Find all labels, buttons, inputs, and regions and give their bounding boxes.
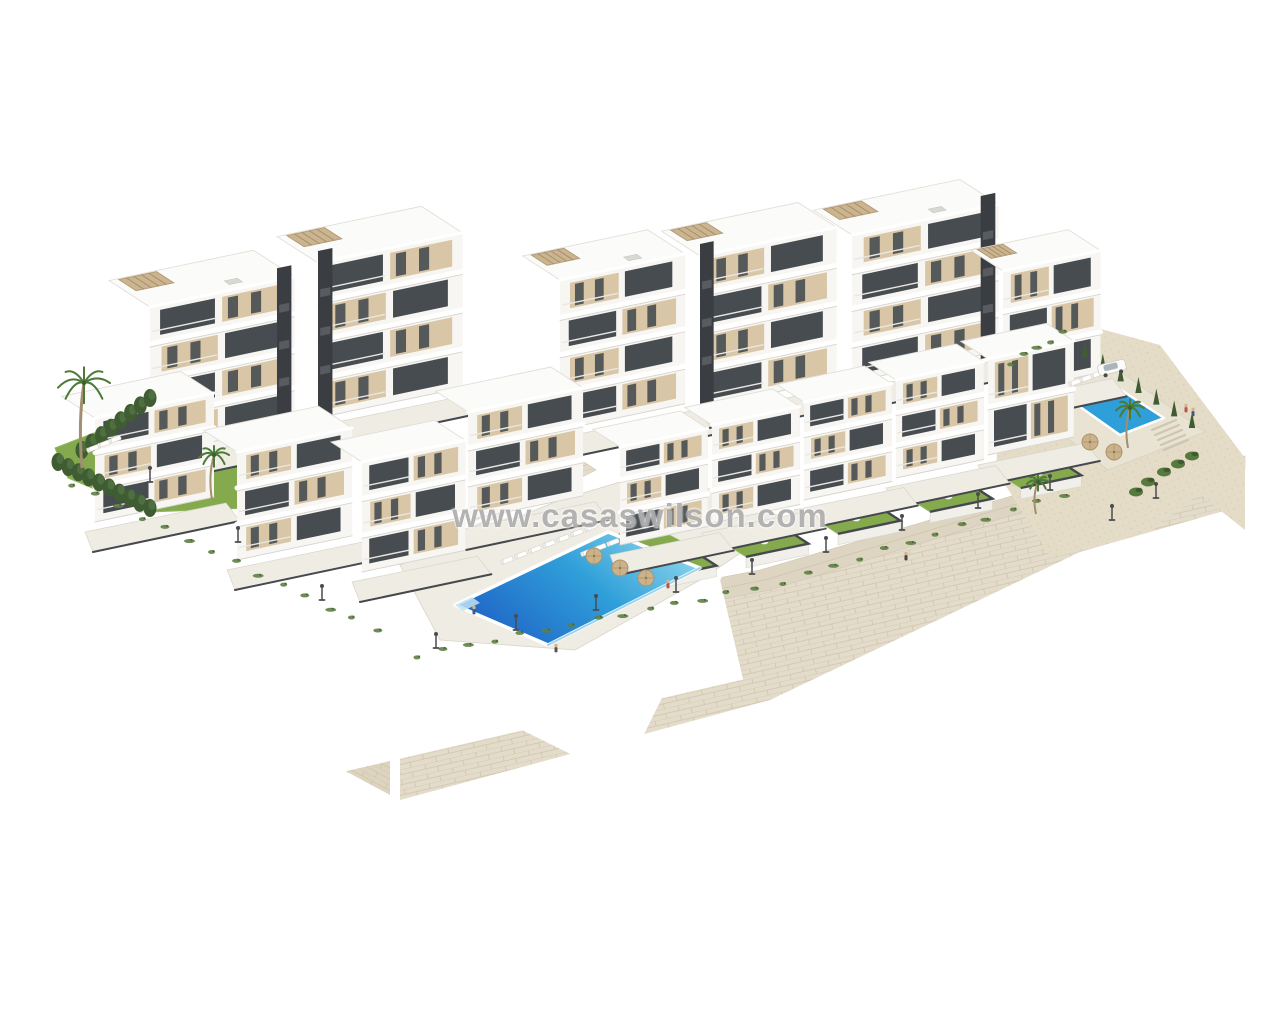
panel-window xyxy=(627,308,636,331)
grass-tuft-dot xyxy=(213,550,215,552)
hedge-highlight xyxy=(128,490,135,500)
grass-tuft-dot xyxy=(166,525,168,527)
grass-tuft xyxy=(373,628,382,632)
grass-tuft xyxy=(253,574,264,578)
parasol-pole xyxy=(1089,441,1091,443)
panel-window xyxy=(251,365,261,388)
grass-tuft xyxy=(594,616,603,620)
grass-tuft-dot xyxy=(143,517,145,519)
grass-tuft-dot xyxy=(652,607,654,609)
grass-tuft-dot xyxy=(1052,340,1054,342)
person-head xyxy=(904,552,907,555)
palm-crown xyxy=(1128,406,1132,410)
panel-window xyxy=(530,440,538,462)
palm-crown xyxy=(212,453,216,457)
grass-tuft xyxy=(1019,352,1028,356)
shrub-shade xyxy=(1178,460,1185,464)
palm-crown xyxy=(82,381,86,385)
grass-tuft xyxy=(438,647,447,651)
panel-window xyxy=(681,505,687,523)
panel-window xyxy=(228,295,238,318)
person-body xyxy=(555,647,558,652)
grass-tuft xyxy=(1058,330,1067,334)
hedge-highlight xyxy=(138,495,145,505)
grass-tuft-dot xyxy=(496,640,498,642)
street-lamp-head xyxy=(824,536,828,540)
grass-tuft-dot xyxy=(306,593,308,595)
panel-window xyxy=(228,369,238,392)
panel-window xyxy=(865,460,871,478)
panel-window xyxy=(681,440,687,458)
grass-tuft xyxy=(804,571,813,575)
person-head xyxy=(1184,404,1187,407)
panel-window xyxy=(1056,306,1063,332)
street-lamp-head xyxy=(1048,474,1052,478)
hedge-highlight xyxy=(149,390,156,400)
panel-window xyxy=(1048,400,1054,433)
panel-window xyxy=(434,452,441,474)
panel-window xyxy=(178,406,186,426)
person-body xyxy=(905,555,908,560)
grass-tuft-dot xyxy=(96,492,98,494)
shrub-shade xyxy=(1192,452,1199,456)
panel-window xyxy=(549,436,557,458)
panel-window xyxy=(774,283,784,307)
panel-window xyxy=(667,443,673,461)
facade-window xyxy=(1033,348,1066,391)
street-lamp-head xyxy=(900,514,904,518)
person-head xyxy=(666,580,669,583)
panel-window xyxy=(667,508,673,526)
grass-tuft-dot xyxy=(521,631,523,633)
grass-tuft-dot xyxy=(73,484,75,486)
person-head xyxy=(1191,408,1194,411)
grass-tuft-dot xyxy=(418,655,420,657)
panel-window xyxy=(434,526,441,548)
grass-tuft-dot xyxy=(912,541,914,543)
street-lamp-head xyxy=(148,466,152,470)
grass-tuft-dot xyxy=(259,574,261,576)
grass-tuft xyxy=(828,564,839,568)
grass-tuft-dot xyxy=(1064,330,1066,332)
grass-tuft xyxy=(1031,346,1042,350)
panel-window xyxy=(957,405,963,423)
grass-tuft-dot xyxy=(936,533,938,535)
panel-window xyxy=(931,260,941,283)
scene-canvas xyxy=(0,0,1280,1024)
hedge-highlight xyxy=(118,485,125,495)
panel-window xyxy=(865,395,871,413)
grass-tuft-dot xyxy=(1014,507,1016,509)
hedge-highlight xyxy=(67,459,74,469)
grass-tuft xyxy=(232,559,241,563)
grass-tuft-dot xyxy=(963,522,965,524)
panel-window xyxy=(419,324,429,349)
person-head xyxy=(472,606,475,609)
hedge-highlight xyxy=(87,469,94,479)
grass-tuft xyxy=(980,518,991,522)
panel-window xyxy=(796,279,806,303)
panel-window xyxy=(396,251,406,276)
architectural-render: www.casaswilson.com xyxy=(0,0,1280,1024)
panel-window xyxy=(178,475,186,495)
grass-tuft-dot xyxy=(987,518,989,520)
person-body xyxy=(667,583,670,588)
panel-window xyxy=(419,247,429,272)
grass-tuft-dot xyxy=(1038,346,1040,348)
panel-window xyxy=(627,383,636,406)
grass-tuft xyxy=(697,599,708,603)
panel-window xyxy=(159,479,167,499)
person-body xyxy=(1192,411,1195,416)
grass-tuft-dot xyxy=(784,582,786,584)
grass-tuft-dot xyxy=(1012,362,1014,364)
grass-tuft-dot xyxy=(756,587,758,589)
hedge-highlight xyxy=(97,474,104,484)
grass-tuft xyxy=(750,587,759,591)
grass-tuft-dot xyxy=(1025,352,1027,354)
street-lamp-head xyxy=(236,526,240,530)
panel-window xyxy=(299,480,307,502)
grass-tuft-dot xyxy=(379,628,381,630)
grass-tuft xyxy=(325,608,336,612)
hedge-highlight xyxy=(57,454,64,464)
shrub-shade xyxy=(1148,478,1155,482)
grass-tuft-dot xyxy=(469,643,471,645)
panel-window xyxy=(774,359,784,383)
grass-tuft xyxy=(880,546,889,550)
shrub-shade xyxy=(1136,488,1143,492)
grass-tuft-dot xyxy=(704,599,706,601)
grass-tuft-dot xyxy=(1038,499,1040,501)
panel-window xyxy=(851,463,857,481)
street-lamp-head xyxy=(674,576,678,580)
panel-window xyxy=(773,450,779,468)
grass-tuft-dot xyxy=(727,590,729,592)
grass-tuft-dot xyxy=(572,623,574,625)
hedge-highlight xyxy=(149,500,156,510)
grass-tuft-dot xyxy=(835,564,837,566)
panel-window xyxy=(251,291,261,314)
grass-tuft-dot xyxy=(190,539,192,541)
grass-tuft xyxy=(670,601,679,605)
panel-window xyxy=(318,476,326,498)
parasol-pole xyxy=(593,555,595,557)
grass-tuft-dot xyxy=(444,647,446,649)
parasol-pole xyxy=(619,567,621,569)
grass-tuft-dot xyxy=(332,608,334,610)
panel-window xyxy=(647,379,656,402)
person-head xyxy=(554,644,557,647)
grass-tuft xyxy=(184,539,195,543)
shrub-shade xyxy=(1164,468,1171,472)
panel-window xyxy=(396,329,406,354)
street-lamp-head xyxy=(1154,482,1158,486)
grass-tuft-dot xyxy=(624,614,626,616)
grass-tuft-dot xyxy=(548,629,550,631)
panel-window xyxy=(851,398,857,416)
hedge-highlight xyxy=(108,480,115,490)
street-lamp-head xyxy=(1110,504,1114,508)
grass-tuft xyxy=(91,492,100,496)
street-lamp-head xyxy=(976,492,980,496)
grass-tuft-dot xyxy=(1066,494,1068,496)
grass-tuft-dot xyxy=(352,616,354,618)
person-body xyxy=(473,609,476,614)
street-lamp-head xyxy=(594,594,598,598)
street-lamp-head xyxy=(434,632,438,636)
grass-tuft-dot xyxy=(600,616,602,618)
panel-window xyxy=(943,408,949,426)
grass-tuft-dot xyxy=(119,504,121,506)
grass-tuft xyxy=(1032,499,1041,503)
grass-tuft xyxy=(300,593,309,597)
panel-window xyxy=(418,456,425,478)
grass-tuft-dot xyxy=(285,583,287,585)
street-lamp-head xyxy=(750,558,754,562)
panel-window xyxy=(647,304,656,327)
street-lamp-head xyxy=(514,614,518,618)
grass-tuft xyxy=(1059,494,1070,498)
panel-window xyxy=(759,453,765,471)
street-lamp-head xyxy=(320,584,324,588)
grass-tuft-dot xyxy=(238,559,240,561)
grass-tuft xyxy=(463,643,474,647)
grass-tuft xyxy=(113,504,124,508)
grass-tuft-dot xyxy=(885,546,887,548)
grass-tuft xyxy=(958,522,967,526)
panel-window xyxy=(796,355,806,379)
palm-crown xyxy=(1036,480,1040,484)
grass-tuft xyxy=(160,525,169,529)
panel-window xyxy=(1071,303,1078,329)
grass-tuft-dot xyxy=(675,601,677,603)
panel-window xyxy=(418,529,425,551)
parasol-pole xyxy=(645,577,647,579)
panel-window xyxy=(1034,403,1040,436)
panel-window xyxy=(159,410,167,430)
parasol-pole xyxy=(1113,451,1115,453)
grass-tuft xyxy=(515,631,524,635)
grass-tuft xyxy=(617,614,628,618)
grass-tuft xyxy=(905,541,916,545)
panel-window xyxy=(954,255,964,278)
grass-tuft-dot xyxy=(809,571,811,573)
person-body xyxy=(1185,407,1188,412)
grass-tuft-dot xyxy=(861,558,863,560)
grass-tuft xyxy=(541,629,552,633)
panel-window xyxy=(998,363,1004,396)
